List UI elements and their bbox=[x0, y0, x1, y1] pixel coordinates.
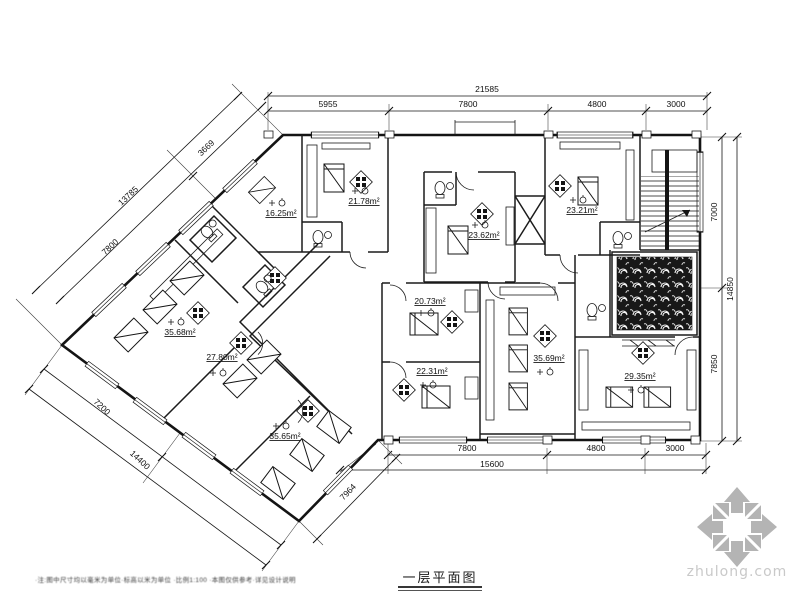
dim-bottom-total: 15600 bbox=[480, 459, 504, 469]
dim-top-seg-3: 4800 bbox=[588, 99, 607, 109]
dim-diaglr-seg-1: 7964 bbox=[338, 481, 359, 502]
zhulong-watermark: zhulong.com bbox=[687, 487, 788, 580]
ornamental-panel bbox=[612, 252, 697, 346]
dim-bottom-seg-1: 7800 bbox=[458, 443, 477, 453]
dim-bottom-seg-2: 4800 bbox=[587, 443, 606, 453]
room-label-3568: 35.68m² bbox=[164, 327, 195, 337]
room-label-3565: 35.65m² bbox=[269, 431, 300, 441]
dim-top-seg-1: 5955 bbox=[319, 99, 338, 109]
dim-diagul-total: 13785 bbox=[116, 184, 140, 208]
dim-right-total: 14850 bbox=[725, 277, 735, 301]
dim-diagul-seg-2: 7800 bbox=[100, 237, 121, 257]
dim-right-seg-1: 7000 bbox=[709, 202, 719, 221]
room-label-2780: 27.80m² bbox=[206, 352, 237, 362]
dim-right-seg-2: 7850 bbox=[709, 354, 719, 373]
dim-diagul-seg-1: 3669 bbox=[196, 138, 217, 158]
zhulong-logo-text: zhulong.com bbox=[687, 564, 788, 580]
dim-diagll-total: 14400 bbox=[128, 448, 152, 472]
dim-top-total: 21585 bbox=[475, 84, 499, 94]
room-label-1625: 16.25m² bbox=[265, 208, 296, 218]
title-block: 一层平面图 ·注:图中尺寸均以毫米为单位·标高以米为单位 ·比例1:100 ·本… bbox=[35, 570, 482, 591]
room-label-2231: 22.31m² bbox=[416, 366, 447, 376]
room-label-2073: 20.73m² bbox=[414, 296, 445, 306]
dim-top-seg-2: 7800 bbox=[459, 99, 478, 109]
zhulong-logo-icon bbox=[697, 487, 777, 567]
dim-bottom-seg-3: 3000 bbox=[666, 443, 685, 453]
room-label-3569: 35.69m² bbox=[533, 353, 564, 363]
room-label-2362: 23.62m² bbox=[468, 230, 499, 240]
dim-diagll-seg-1: 7200 bbox=[92, 397, 113, 417]
dim-top-seg-4: 3000 bbox=[667, 99, 686, 109]
cad-floorplan-page: 21585 5955 7800 4800 3000 7800 4800 3000… bbox=[0, 0, 800, 600]
drawing-footnote: ·注:图中尺寸均以毫米为单位·标高以米为单位 ·比例1:100 ·本图仅供参考·… bbox=[35, 575, 296, 584]
room-label-2321: 23.21m² bbox=[566, 205, 597, 215]
stairs bbox=[641, 150, 699, 250]
room-label-2935: 29.35m² bbox=[624, 371, 655, 381]
room-label-2178: 21.78m² bbox=[348, 196, 379, 206]
drawing-title: 一层平面图 bbox=[402, 570, 477, 585]
floorplan-drawing: 21585 5955 7800 4800 3000 7800 4800 3000… bbox=[0, 0, 800, 600]
